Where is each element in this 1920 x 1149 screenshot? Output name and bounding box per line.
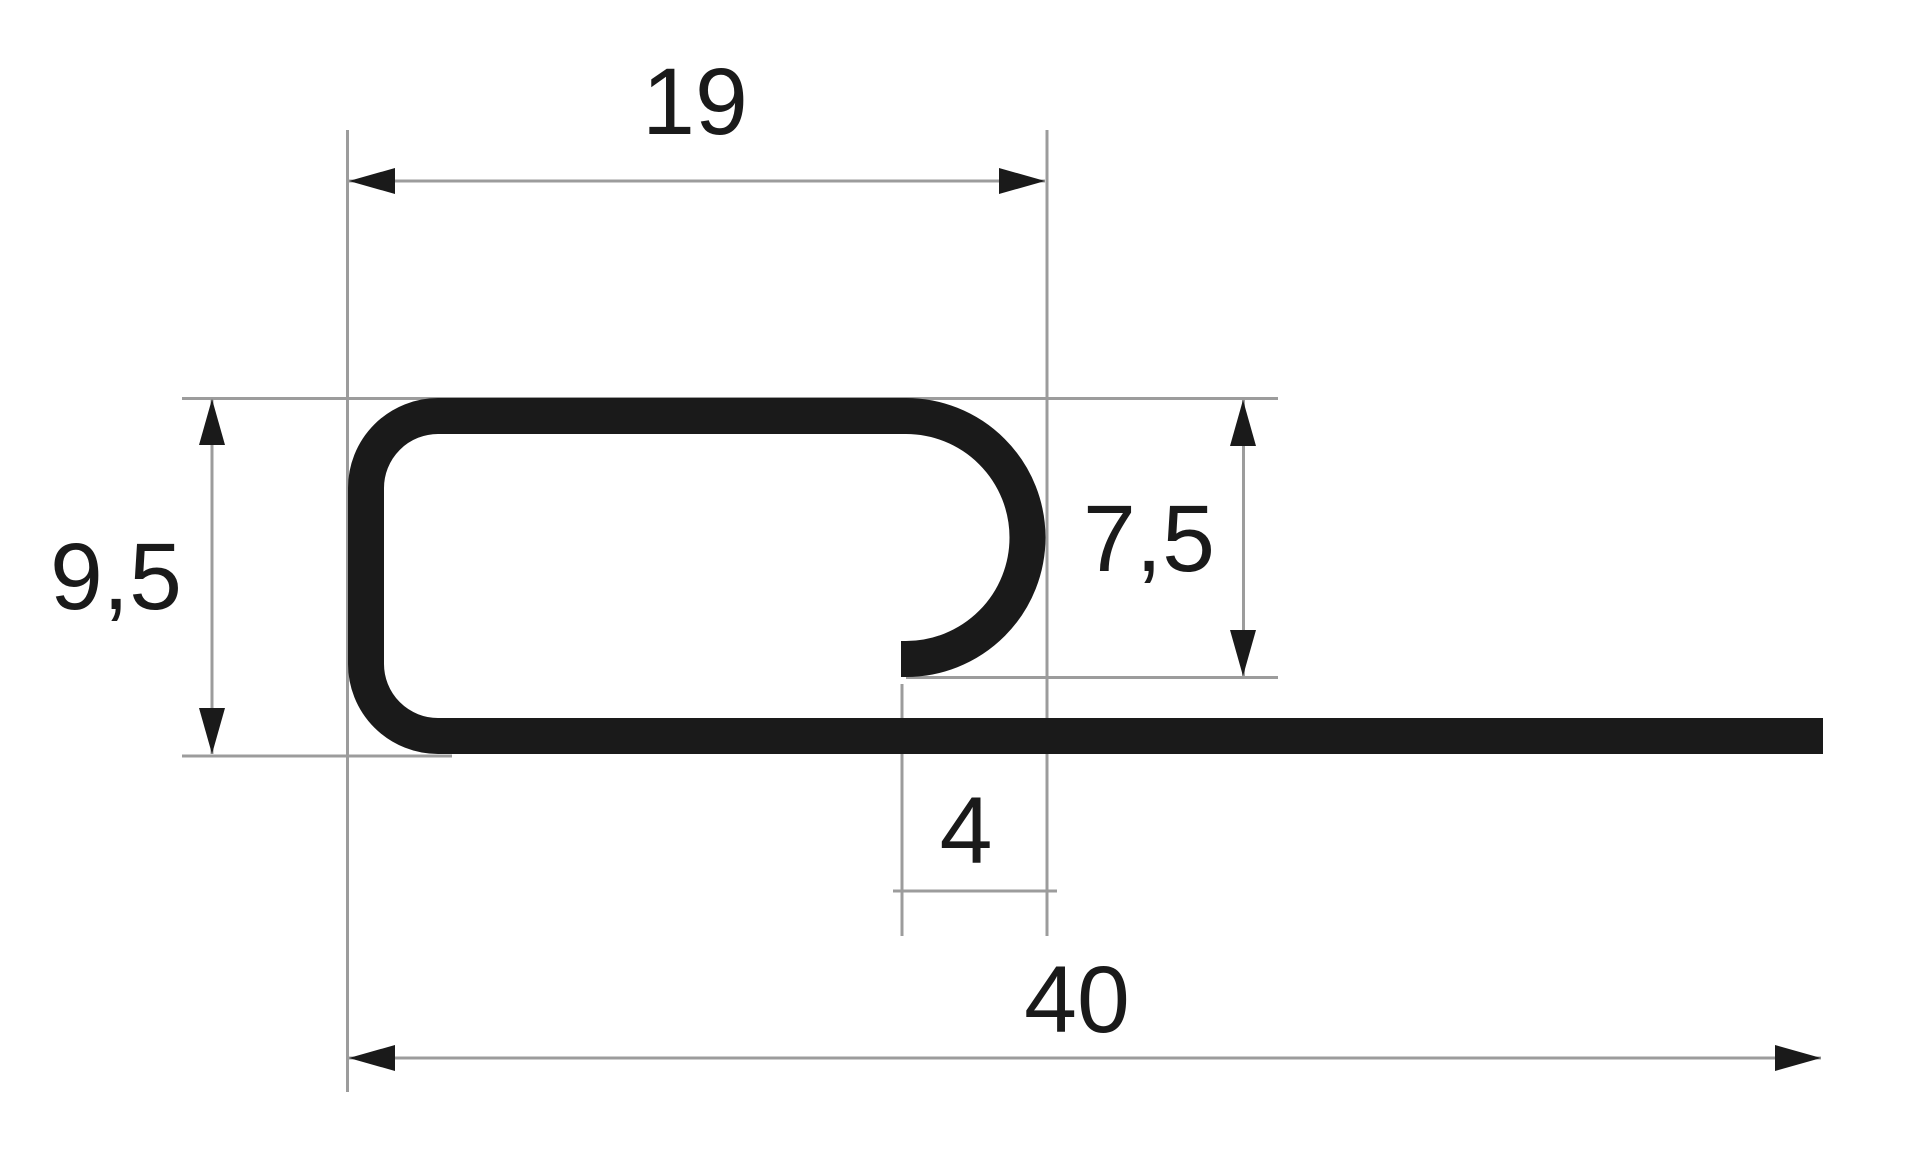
- arrowhead-top-width-right: [999, 168, 1045, 194]
- arrowhead-top-width-left: [349, 168, 395, 194]
- dimension-label-top-width: 19: [642, 49, 748, 155]
- arrowhead-left-height-top: [199, 399, 225, 445]
- dimension-label-curl-opening: 4: [940, 778, 993, 884]
- arrowhead-left-height-bottom: [199, 708, 225, 754]
- arrowhead-base-width-right: [1775, 1045, 1821, 1071]
- dimension-label-curl-depth: 7,5: [1083, 486, 1215, 592]
- dimension-label-base-width: 40: [1024, 947, 1130, 1053]
- profile-technical-drawing: 19 9,5 7,5 4 40: [0, 0, 1920, 1149]
- arrowhead-base-width-left: [349, 1045, 395, 1071]
- arrowhead-curl-depth-top: [1230, 400, 1256, 446]
- dimension-label-left-height: 9,5: [50, 524, 182, 630]
- drawing-canvas: 19 9,5 7,5 4 40: [0, 0, 1920, 1149]
- arrowhead-curl-depth-bottom: [1230, 630, 1256, 676]
